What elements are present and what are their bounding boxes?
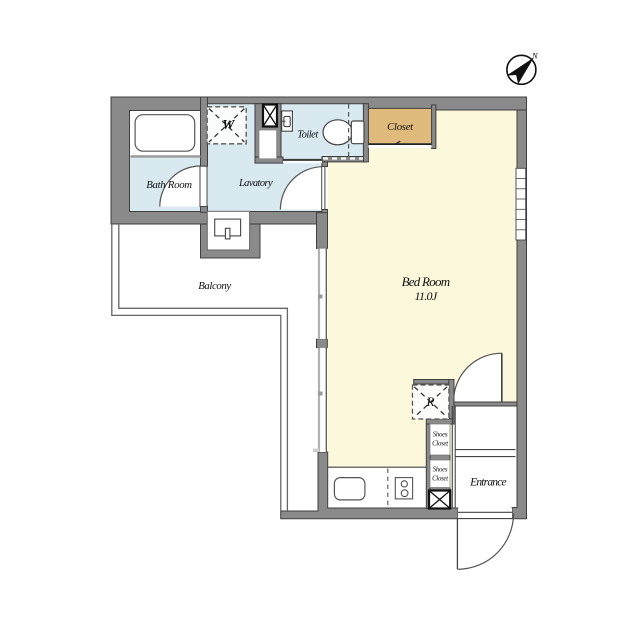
svg-text:R: R	[426, 394, 435, 409]
svg-text:Balcony: Balcony	[198, 280, 231, 292]
svg-text:Entrance: Entrance	[469, 477, 506, 489]
svg-text:Shoes: Shoes	[433, 432, 448, 439]
svg-text:W: W	[222, 117, 235, 132]
svg-text:11.0J: 11.0J	[415, 289, 438, 303]
svg-text:Shoes: Shoes	[433, 467, 448, 474]
svg-text:Bed Room: Bed Room	[402, 274, 450, 289]
svg-text:Closet: Closet	[432, 476, 449, 483]
svg-text:Lavatory: Lavatory	[238, 178, 273, 189]
svg-text:Toilet: Toilet	[297, 130, 319, 141]
svg-text:Closet: Closet	[387, 121, 414, 133]
svg-text:Bath Room: Bath Room	[146, 179, 192, 191]
svg-text:N: N	[531, 50, 539, 60]
svg-text:Closet: Closet	[432, 441, 449, 448]
